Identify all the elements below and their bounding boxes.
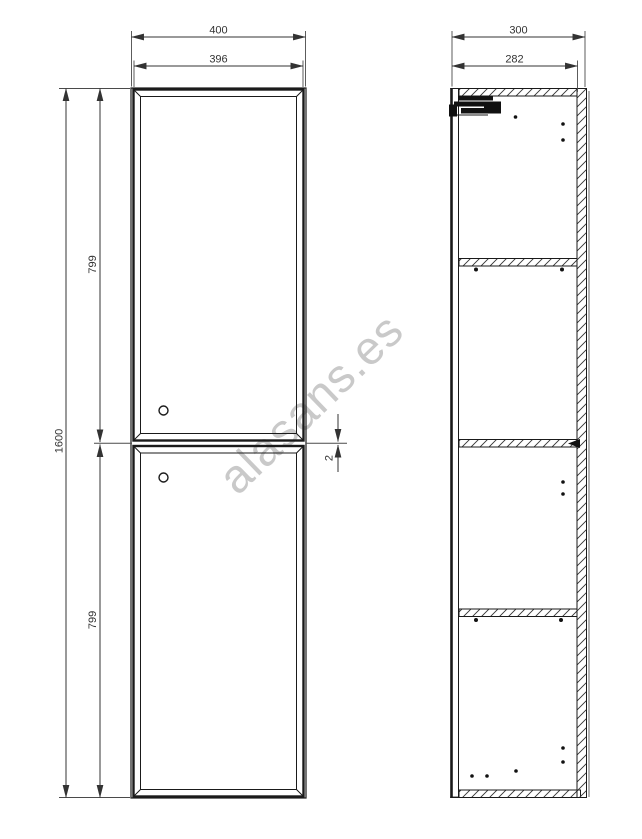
- side-top-panel: [459, 89, 577, 97]
- shelf-middle-fixed: [459, 439, 580, 448]
- side-view: [449, 88, 589, 798]
- watermark-text: alasans.es: [208, 303, 414, 504]
- technical-drawing: alasans.es: [0, 0, 642, 839]
- dim-label-overall-depth: 300: [509, 25, 527, 37]
- dim-label-overall-height: 1600: [54, 429, 66, 453]
- top-door-knob-hole: [159, 406, 168, 415]
- top-door: [134, 90, 304, 441]
- dim-label-bottom-door-height: 799: [87, 611, 99, 629]
- hinge-mechanism: [449, 96, 501, 117]
- dim-label-top-door-height: 799: [87, 255, 99, 273]
- bottom-door: [134, 446, 304, 797]
- bottom-door-chamfer-lines: [134, 446, 304, 797]
- dim-label-door-width: 396: [209, 54, 227, 66]
- dim-label-internal-depth: 282: [505, 54, 523, 66]
- shelf-bottom-adjustable: [459, 609, 577, 622]
- shelf-pin: [559, 618, 563, 622]
- bottom-door-outline: [134, 446, 304, 797]
- side-dimensions: 300 282: [452, 25, 585, 93]
- top-door-inner-bevel: [141, 97, 297, 434]
- drawing-canvas: alasans.es: [0, 0, 642, 839]
- dim-label-overall-width: 400: [209, 25, 227, 37]
- dim-label-door-gap: 2: [324, 455, 336, 461]
- top-door-outline: [134, 90, 304, 441]
- shelf-pin: [474, 268, 478, 272]
- shelf-pin: [560, 268, 564, 272]
- bottom-door-inner-bevel: [141, 453, 297, 790]
- side-bottom-panel: [459, 790, 581, 798]
- shelf-pin: [474, 618, 478, 622]
- shelf-top-adjustable: [459, 259, 577, 272]
- top-door-chamfer-lines: [134, 90, 304, 441]
- side-door-edge: [450, 88, 459, 798]
- bottom-door-knob-hole: [159, 473, 168, 482]
